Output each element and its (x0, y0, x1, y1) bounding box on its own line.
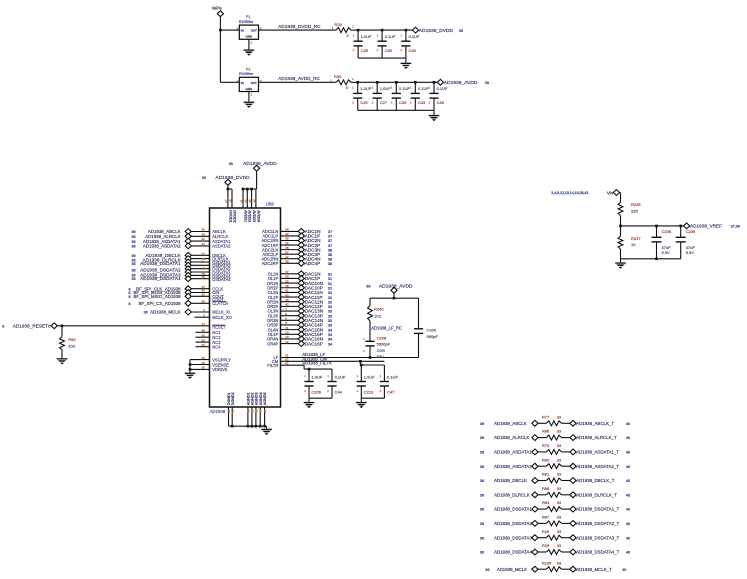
svg-text:40: 40 (626, 493, 630, 497)
svg-text:13: 13 (285, 335, 289, 339)
svg-text:R29: R29 (542, 543, 549, 548)
svg-text:AD1938_ASDATA2: AD1938_ASDATA2 (494, 464, 532, 469)
svg-text:AD1938_DSDATA2: AD1938_DSDATA2 (494, 521, 532, 526)
svg-text:ADC4P: ADC4P (305, 261, 321, 266)
svg-text:0.1UF: 0.1UF (437, 86, 448, 91)
svg-text:AD1938_FILTR: AD1938_FILTR (302, 360, 332, 365)
svg-text:GND: GND (246, 87, 252, 91)
svg-text:33: 33 (328, 314, 332, 318)
svg-text:2: 2 (203, 308, 205, 312)
svg-text:15: 15 (201, 267, 205, 271)
svg-text:36: 36 (132, 277, 136, 281)
svg-text:33: 33 (557, 457, 561, 462)
svg-text:23: 23 (201, 356, 205, 360)
svg-text:GND: GND (246, 35, 252, 39)
svg-text:VaPa: VaPa (212, 6, 223, 11)
svg-text:OR4P: OR4P (267, 341, 278, 346)
svg-text:OUT: OUT (251, 29, 257, 33)
svg-text:39: 39 (285, 279, 289, 283)
svg-text:0.1UF: 0.1UF (385, 34, 396, 39)
svg-text:40: 40 (626, 436, 630, 440)
svg-text:10K: 10K (68, 344, 75, 349)
svg-text:8: 8 (2, 325, 4, 329)
svg-text:C33: C33 (399, 100, 407, 105)
svg-text:50: 50 (201, 334, 205, 338)
svg-text:37: 37 (328, 244, 332, 248)
svg-text:AD1938_RESETn: AD1938_RESETn (13, 324, 51, 329)
svg-text:R86: R86 (542, 429, 549, 434)
svg-text:33: 33 (557, 515, 561, 520)
svg-text:36: 36 (144, 311, 148, 315)
svg-text:R87: R87 (542, 515, 549, 520)
svg-text:AD1938_ABCLK: AD1938_ABCLK (494, 421, 527, 426)
svg-text:37: 37 (328, 230, 332, 234)
svg-text:36: 36 (485, 81, 489, 85)
svg-text:33: 33 (557, 560, 561, 565)
svg-text:AD1938_ABCLK_T: AD1938_ABCLK_T (576, 421, 614, 426)
svg-text:50V: 50V (377, 354, 384, 359)
svg-text:29: 29 (201, 232, 205, 236)
svg-text:AD1938_DSDATA3_T: AD1938_DSDATA3_T (576, 535, 619, 540)
svg-text:33: 33 (328, 319, 332, 323)
svg-text:32: 32 (328, 296, 332, 300)
svg-text:C40: C40 (409, 48, 417, 53)
svg-text:33: 33 (557, 529, 561, 534)
svg-text:36: 36 (480, 493, 484, 497)
svg-text:AD1938_DSDATA2_T: AD1938_DSDATA2_T (576, 521, 619, 526)
svg-text:R30: R30 (334, 74, 342, 79)
svg-text:AGND5: AGND5 (263, 392, 267, 405)
svg-text:43: 43 (285, 298, 289, 302)
svg-text:6.3V: 6.3V (686, 250, 695, 255)
svg-text:40: 40 (626, 451, 630, 455)
svg-text:C238: C238 (662, 229, 672, 234)
svg-text:34: 34 (328, 333, 332, 337)
svg-text:46: 46 (252, 199, 256, 203)
svg-text:39: 39 (285, 259, 289, 263)
svg-text:R240: R240 (374, 307, 384, 312)
svg-text:31: 31 (201, 292, 205, 296)
svg-text:NC4: NC4 (212, 345, 221, 350)
svg-text:40: 40 (626, 508, 630, 512)
svg-text:R237: R237 (631, 236, 641, 241)
svg-text:AD1938_DVDD: AD1938_DVDD (215, 175, 250, 181)
svg-text:3,4,9,12,13,14,19,28,43: 3,4,9,12,13,14,19,28,43 (551, 191, 588, 195)
svg-text:28: 28 (201, 228, 205, 232)
svg-text:ADC2RP: ADC2RP (262, 261, 279, 266)
svg-text:AD1938_MCLK: AD1938_MCLK (150, 310, 181, 315)
svg-text:AD1938_DSDATA4: AD1938_DSDATA4 (140, 276, 181, 281)
svg-text:R126: R126 (542, 560, 551, 565)
svg-text:31: 31 (328, 286, 332, 290)
svg-text:11: 11 (285, 326, 288, 330)
svg-text:18: 18 (228, 199, 232, 203)
svg-text:36: 36 (480, 536, 484, 540)
svg-text:DVDD2: DVDD2 (232, 210, 236, 223)
svg-text:R77: R77 (542, 414, 549, 419)
svg-text:AD1938_DBCLK: AD1938_DBCLK (494, 478, 527, 483)
svg-text:36: 36 (132, 245, 136, 249)
svg-text:37: 37 (285, 270, 289, 274)
svg-text:38: 38 (328, 257, 332, 261)
svg-text:36: 36 (480, 508, 484, 512)
svg-text:36: 36 (132, 240, 136, 244)
svg-text:IN: IN (241, 81, 244, 85)
svg-text:36: 36 (366, 285, 370, 289)
svg-text:36: 36 (480, 551, 484, 555)
svg-text:37: 37 (328, 239, 332, 243)
svg-text:226: 226 (631, 208, 638, 213)
svg-text:ASDATA2: ASDATA2 (212, 244, 231, 249)
svg-text:44: 44 (259, 409, 263, 413)
svg-text:33: 33 (557, 414, 561, 419)
svg-text:AD1938_DSDATA4: AD1938_DSDATA4 (494, 550, 532, 555)
svg-text:38: 38 (285, 246, 289, 250)
svg-text:C47: C47 (387, 389, 395, 394)
svg-text:26: 26 (201, 366, 205, 370)
svg-text:AVDD2: AVDD2 (248, 210, 252, 222)
svg-text:36: 36 (480, 479, 484, 483)
svg-text:16: 16 (201, 275, 205, 279)
svg-text:36: 36 (229, 162, 233, 166)
svg-text:8: 8 (129, 295, 131, 299)
svg-text:C27: C27 (380, 100, 388, 105)
svg-text:DSDATA4: DSDATA4 (212, 277, 231, 282)
svg-text:8: 8 (129, 302, 131, 306)
svg-text:31: 31 (328, 273, 332, 277)
svg-text:35: 35 (201, 299, 205, 303)
svg-text:40: 40 (626, 465, 630, 469)
svg-text:AD1938_DLRCLK: AD1938_DLRCLK (494, 492, 530, 497)
svg-text:1K: 1K (631, 242, 636, 247)
svg-text:AD1938_DSDATA1: AD1938_DSDATA1 (140, 261, 181, 266)
svg-text:40: 40 (285, 293, 289, 297)
svg-text:C25: C25 (360, 100, 368, 105)
svg-text:9: 9 (285, 317, 287, 321)
svg-text:31: 31 (328, 277, 332, 281)
svg-text:C30: C30 (385, 48, 393, 53)
svg-text:36: 36 (480, 451, 484, 455)
svg-text:36: 36 (480, 436, 484, 440)
svg-text:32: 32 (328, 300, 332, 304)
svg-text:32: 32 (328, 291, 332, 295)
svg-text:C209: C209 (427, 328, 437, 333)
svg-text:34: 34 (285, 228, 289, 232)
svg-text:VDRIVE: VDRIVE (212, 367, 228, 372)
svg-text:34: 34 (328, 338, 332, 342)
svg-text:12: 12 (285, 340, 289, 344)
svg-text:38: 38 (328, 262, 332, 266)
svg-text:AD1938_ASDATA1: AD1938_ASDATA1 (494, 450, 532, 455)
svg-text:R88: R88 (542, 486, 549, 491)
svg-text:AGND4: AGND4 (259, 392, 263, 405)
svg-text:0.1UF: 0.1UF (399, 86, 410, 91)
svg-text:36: 36 (480, 465, 484, 469)
svg-text:20: 20 (231, 409, 235, 413)
svg-text:AD1938_AVDD: AD1938_AVDD (444, 80, 478, 86)
svg-text:14: 14 (201, 322, 205, 326)
svg-text:40: 40 (626, 536, 630, 540)
svg-text:3: 3 (203, 313, 205, 317)
svg-text:AD1938_DLRCLK_T: AD1938_DLRCLK_T (576, 492, 617, 497)
svg-text:36: 36 (285, 237, 289, 241)
svg-text:FILTR: FILTR (267, 363, 278, 368)
svg-text:10: 10 (285, 330, 289, 334)
svg-text:R84: R84 (542, 500, 550, 505)
svg-text:AD1938_MCLK: AD1938_MCLK (497, 567, 528, 572)
svg-text:20: 20 (201, 260, 205, 264)
svg-text:AD1938_ALRCLK_T: AD1938_ALRCLK_T (576, 435, 617, 440)
svg-text:40: 40 (626, 422, 630, 426)
svg-text:33: 33 (557, 472, 561, 477)
svg-text:DVDD1: DVDD1 (228, 210, 232, 223)
svg-text:34: 34 (328, 342, 332, 346)
svg-text:C0G: C0G (377, 348, 385, 353)
svg-text:19: 19 (227, 409, 231, 413)
svg-text:AD1938_ASDATA1_T: AD1938_ASDATA1_T (576, 450, 619, 455)
svg-text:6: 6 (285, 312, 287, 316)
svg-text:R29: R29 (335, 22, 343, 27)
svg-text:40: 40 (626, 551, 630, 555)
svg-text:6.3V: 6.3V (662, 250, 671, 255)
svg-text:R92: R92 (68, 337, 76, 342)
svg-text:40: 40 (622, 568, 626, 572)
svg-text:R60: R60 (542, 457, 550, 462)
svg-text:25: 25 (201, 361, 205, 365)
svg-text:C43: C43 (418, 100, 426, 105)
svg-text:33: 33 (328, 310, 332, 314)
svg-text:41: 41 (285, 289, 289, 293)
svg-text:33: 33 (557, 543, 561, 548)
svg-text:AD1938_ASDATA2: AD1938_ASDATA2 (143, 244, 181, 249)
svg-text:AD1938_DSDATA1_T: AD1938_DSDATA1_T (576, 507, 619, 512)
svg-text:33: 33 (328, 324, 332, 328)
svg-text:AD1938_DSDATA4_T: AD1938_DSDATA4_T (576, 550, 619, 555)
svg-text:0.1UF: 0.1UF (409, 34, 420, 39)
svg-text:DAC16P: DAC16P (305, 341, 323, 346)
svg-text:36: 36 (285, 275, 289, 279)
svg-text:C208: C208 (377, 335, 387, 340)
svg-text:1.0UF: 1.0UF (364, 374, 375, 379)
svg-text:EMIfilter: EMIfilter (239, 19, 254, 24)
svg-text:C239: C239 (686, 229, 696, 234)
svg-text:COUT: COUT (212, 297, 224, 302)
svg-text:49: 49 (201, 329, 205, 333)
svg-text:AD1938_AVDD_RC: AD1938_AVDD_RC (278, 76, 320, 81)
svg-text:AD1938: AD1938 (210, 409, 226, 414)
svg-text:1.0UF: 1.0UF (361, 34, 372, 39)
svg-text:1.0UF: 1.0UF (311, 374, 322, 379)
svg-text:C44: C44 (335, 389, 343, 394)
svg-text:EMIfilter: EMIfilter (239, 71, 254, 76)
svg-text:7: 7 (285, 307, 287, 311)
svg-text:33: 33 (557, 500, 561, 505)
svg-text:BF_SPI_CS_AD1938: BF_SPI_CS_AD1938 (139, 301, 182, 306)
svg-text:1.0UF: 1.0UF (360, 86, 371, 91)
svg-text:C206: C206 (311, 389, 321, 394)
svg-text:36: 36 (485, 568, 489, 572)
svg-text:21: 21 (246, 409, 250, 413)
svg-text:36: 36 (132, 254, 136, 258)
svg-text:36: 36 (480, 422, 484, 426)
svg-text:BF_SPI_MISO_AD1938: BF_SPI_MISO_AD1938 (133, 294, 181, 299)
svg-text:36: 36 (480, 522, 484, 526)
svg-text:1.0UF: 1.0UF (380, 86, 391, 91)
svg-text:OUT: OUT (251, 81, 257, 85)
svg-text:32: 32 (285, 232, 289, 236)
svg-text:AD1938_ASDATA2_T: AD1938_ASDATA2_T (576, 464, 619, 469)
svg-text:42: 42 (285, 255, 289, 259)
svg-text:AVDD1: AVDD1 (243, 210, 247, 222)
svg-text:C213: C213 (364, 389, 374, 394)
svg-text:33: 33 (557, 429, 561, 434)
svg-text:AD1938_DBCLK_T: AD1938_DBCLK_T (576, 478, 614, 483)
svg-text:AD1938_DVDD_RC: AD1938_DVDD_RC (278, 24, 321, 29)
svg-text:31: 31 (328, 282, 332, 286)
svg-text:AD1938_LF_RC: AD1938_LF_RC (371, 326, 402, 331)
svg-text:54: 54 (201, 343, 205, 347)
svg-text:AVDD3: AVDD3 (252, 210, 256, 222)
svg-text:0.1UF: 0.1UF (387, 374, 398, 379)
svg-text:MCLK_XI: MCLK_XI (212, 310, 230, 315)
svg-text:2: 2 (251, 41, 253, 45)
svg-text:R235: R235 (631, 202, 641, 207)
svg-text:24: 24 (201, 242, 205, 246)
svg-text:36: 36 (202, 176, 206, 180)
svg-text:AD1938_VREF: AD1938_VREF (690, 224, 722, 229)
svg-text:33: 33 (557, 443, 561, 448)
svg-text:38: 38 (328, 253, 332, 257)
svg-text:33: 33 (557, 486, 561, 491)
svg-text:AVDD4: AVDD4 (256, 210, 260, 222)
svg-text:27: 27 (201, 252, 205, 256)
svg-text:AD1938_DSDATA3: AD1938_DSDATA3 (494, 535, 532, 540)
svg-text:37: 37 (285, 250, 289, 254)
svg-text:U56: U56 (266, 202, 275, 207)
svg-text:40: 40 (626, 479, 630, 483)
svg-text:AD1938_ALRCLK: AD1938_ALRCLK (494, 435, 529, 440)
svg-text:38: 38 (285, 284, 289, 288)
svg-text:Vin: Vin (607, 190, 614, 195)
svg-text:AD1938_DVDD: AD1938_DVDD (419, 28, 454, 34)
svg-text:390pF: 390pF (427, 334, 439, 339)
svg-text:R73: R73 (542, 443, 549, 448)
svg-text:IN: IN (241, 29, 244, 33)
svg-text:48: 48 (263, 409, 267, 413)
svg-text:40: 40 (626, 522, 630, 526)
svg-text:36: 36 (132, 262, 136, 266)
svg-text:36: 36 (132, 269, 136, 273)
svg-text:AD1938_AVDD: AD1938_AVDD (243, 161, 277, 167)
svg-text:R81: R81 (542, 472, 549, 477)
svg-text:34: 34 (328, 328, 332, 332)
svg-text:53: 53 (201, 338, 205, 342)
svg-text:DGND2: DGND2 (231, 392, 235, 405)
svg-text:C26: C26 (361, 48, 369, 53)
svg-text:2: 2 (251, 93, 253, 97)
svg-text:47: 47 (285, 361, 289, 365)
svg-text:36: 36 (459, 29, 463, 33)
svg-text:36: 36 (132, 230, 136, 234)
svg-text:38: 38 (328, 248, 332, 252)
svg-text:AD1938_MCLK_T: AD1938_MCLK_T (576, 567, 612, 572)
svg-text:30: 30 (201, 237, 205, 241)
svg-text:5600pF: 5600pF (377, 342, 391, 347)
svg-text:42: 42 (285, 303, 289, 307)
svg-text:35: 35 (285, 241, 289, 245)
svg-text:8: 8 (285, 321, 287, 325)
svg-text:37: 37 (328, 235, 332, 239)
svg-text:1K2: 1K2 (374, 313, 382, 318)
svg-text:33: 33 (254, 409, 258, 413)
svg-text:MCLK_XO: MCLK_XO (212, 315, 232, 320)
svg-text:C45: C45 (437, 100, 445, 105)
svg-text:32: 32 (328, 305, 332, 309)
svg-text:0.1UF: 0.1UF (335, 374, 346, 379)
svg-text:36: 36 (132, 235, 136, 239)
svg-text:R28: R28 (542, 529, 549, 534)
svg-text:AD1938_DSDATA1: AD1938_DSDATA1 (494, 507, 532, 512)
svg-text:37,38: 37,38 (731, 225, 740, 229)
